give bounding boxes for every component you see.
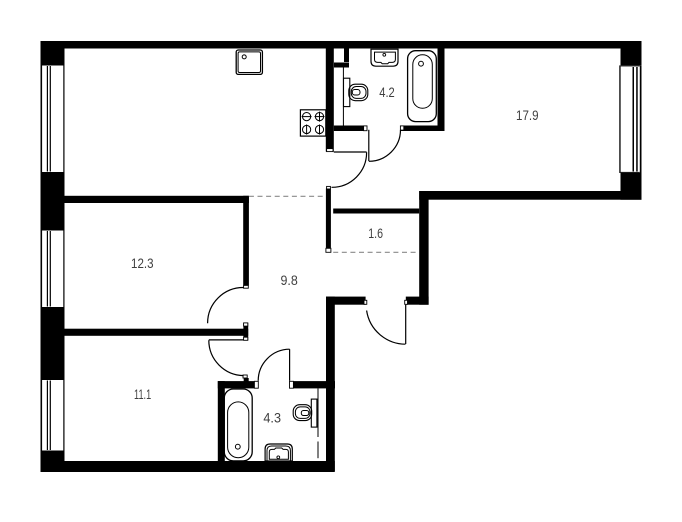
svg-text:11.1: 11.1 bbox=[134, 386, 151, 402]
svg-text:12.3: 12.3 bbox=[131, 255, 154, 271]
svg-text:1.6: 1.6 bbox=[368, 225, 383, 241]
svg-text:17.9: 17.9 bbox=[516, 107, 539, 123]
svg-text:9.8: 9.8 bbox=[280, 272, 297, 288]
svg-text:4.3: 4.3 bbox=[263, 409, 281, 425]
svg-text:4.2: 4.2 bbox=[379, 84, 395, 100]
